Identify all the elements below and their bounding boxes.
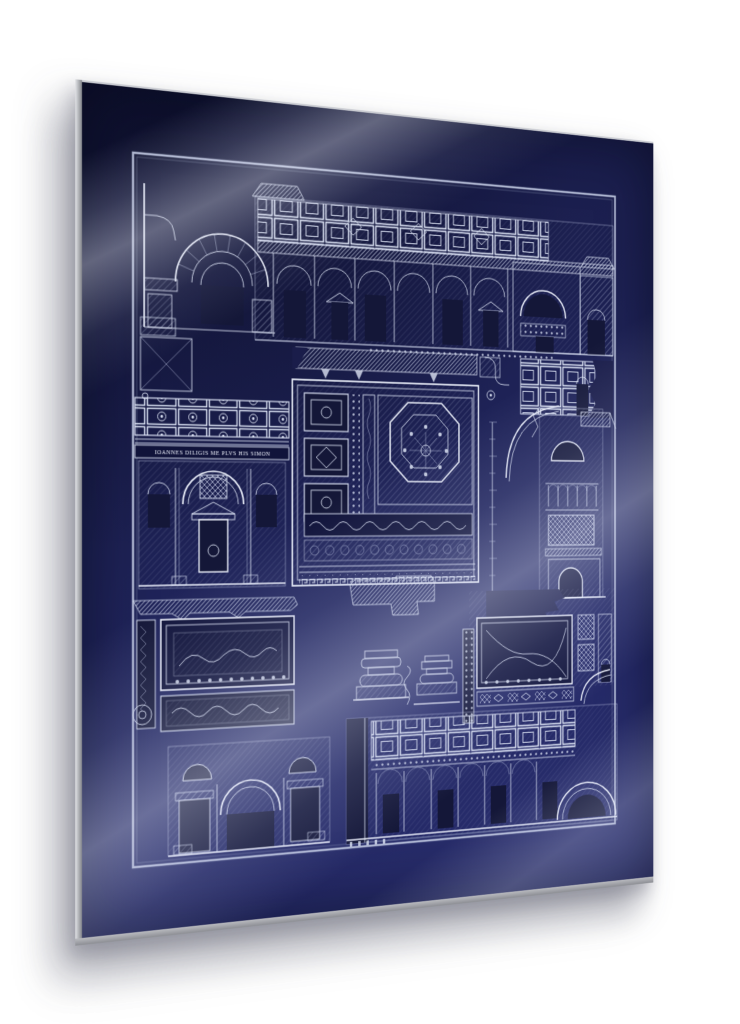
plate-arcade-elevation xyxy=(347,704,618,847)
plate-tower-section xyxy=(489,404,615,600)
plate-mosaic-fragment xyxy=(133,597,297,733)
plate-nave-elevation xyxy=(252,183,614,362)
octagon-rosette xyxy=(378,395,472,504)
plate-arch-wall xyxy=(168,737,330,856)
metal-print-panel: IOANNES DILIGIS ME PLVS HIS SIMON xyxy=(82,82,653,938)
panel-face: IOANNES DILIGIS ME PLVS HIS SIMON xyxy=(82,82,653,938)
plate-inscription-aedicule: IOANNES DILIGIS ME PLVS HIS SIMON xyxy=(135,398,289,589)
plan-fragment xyxy=(140,317,191,400)
column-base-large xyxy=(353,650,409,701)
plate-pier-bases xyxy=(350,575,474,730)
blueprint-artwork: IOANNES DILIGIS ME PLVS HIS SIMON xyxy=(82,82,653,938)
product-photo-stage: IOANNES DILIGIS ME PLVS HIS SIMON xyxy=(0,0,740,1024)
column-base-small xyxy=(414,655,460,705)
plate-soffit-coffer xyxy=(469,588,614,710)
ceiling-left-coffers xyxy=(304,393,348,521)
panel-left-edge xyxy=(75,79,82,940)
plate-ceiling-panel xyxy=(292,347,478,586)
